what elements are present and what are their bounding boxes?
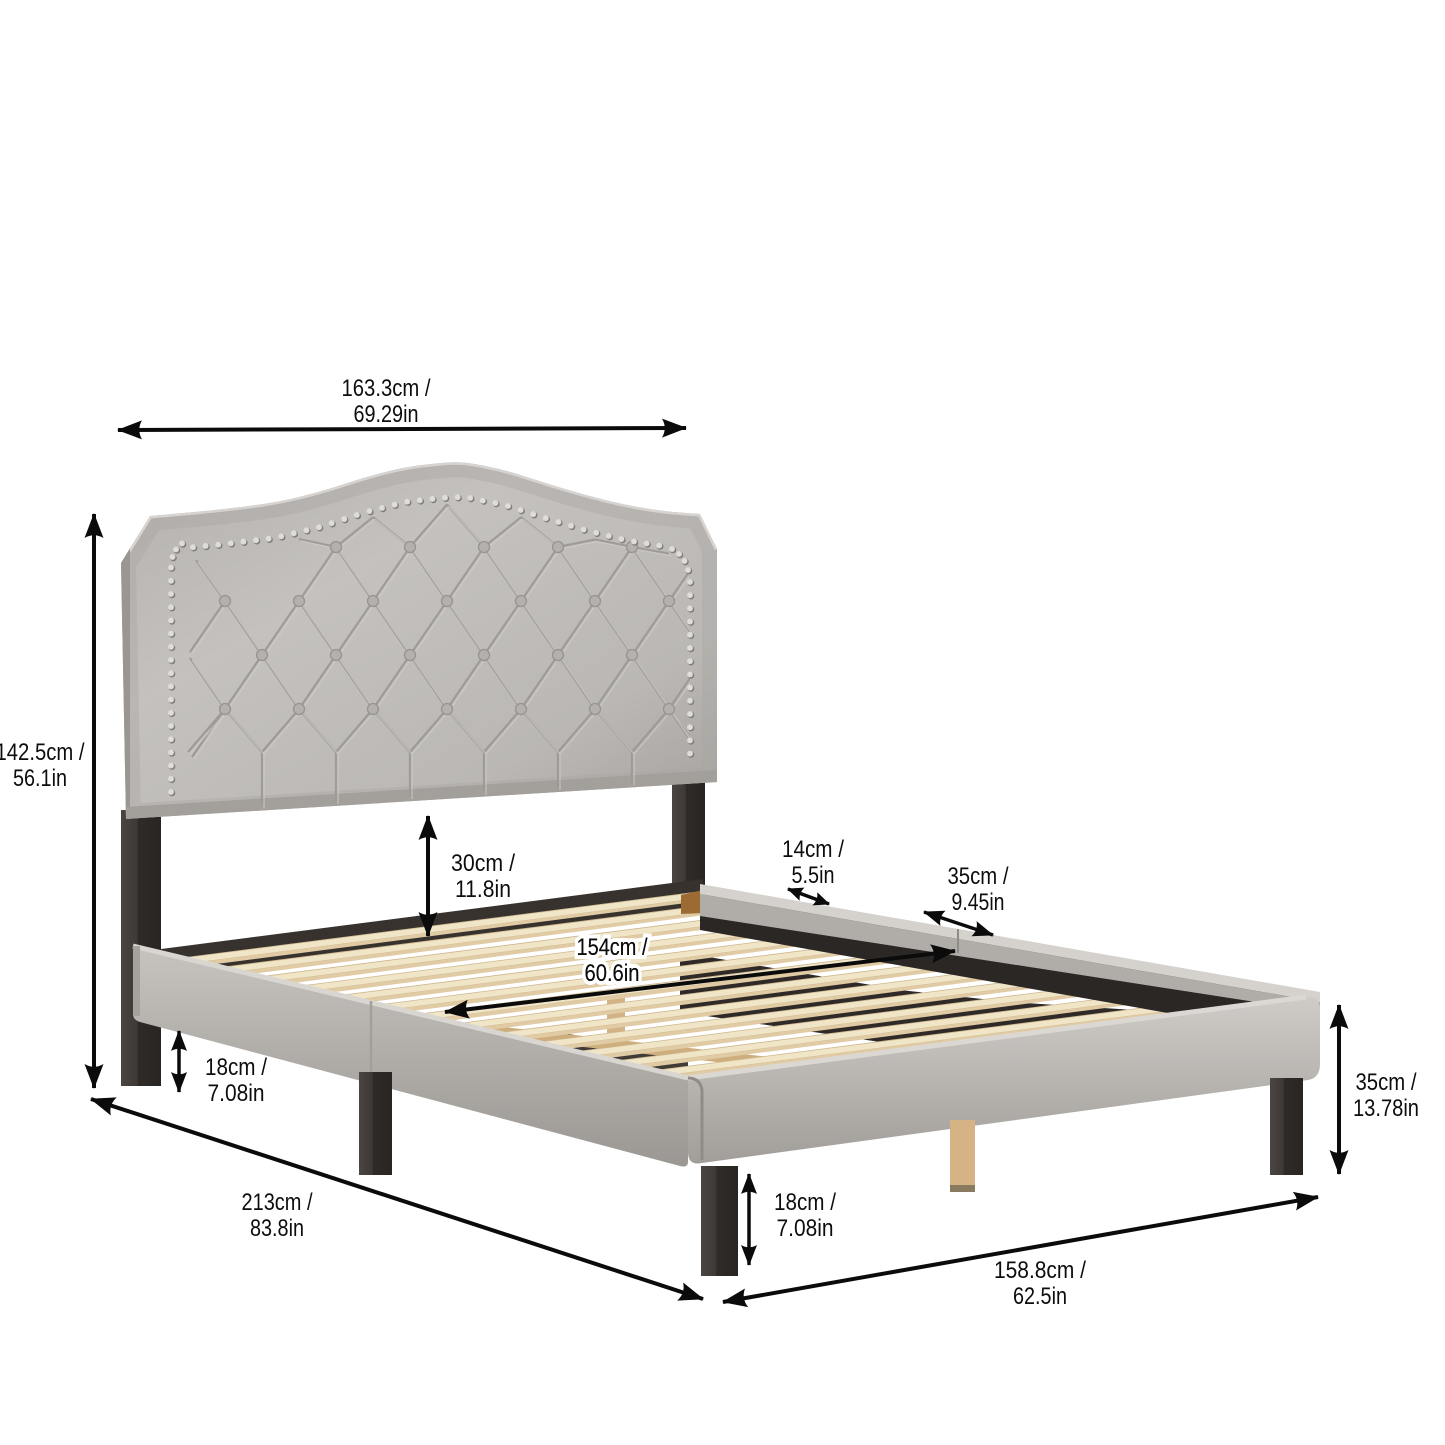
svg-text:18cm /: 18cm /: [774, 1189, 836, 1216]
svg-text:83.8in: 83.8in: [250, 1215, 304, 1242]
svg-text:60.6in: 60.6in: [585, 960, 640, 987]
svg-text:158.8cm /: 158.8cm /: [994, 1257, 1086, 1284]
svg-text:69.29in: 69.29in: [354, 401, 419, 428]
svg-text:30cm /: 30cm /: [451, 850, 515, 877]
svg-text:154cm /: 154cm /: [577, 934, 648, 961]
svg-text:35cm /: 35cm /: [948, 863, 1009, 890]
svg-text:7.08in: 7.08in: [777, 1215, 834, 1242]
svg-text:5.5in: 5.5in: [792, 862, 835, 889]
svg-text:14cm /: 14cm /: [782, 836, 844, 863]
svg-text:7.08in: 7.08in: [208, 1080, 265, 1107]
svg-text:142.5cm /: 142.5cm /: [0, 739, 85, 766]
svg-text:213cm /: 213cm /: [242, 1189, 313, 1216]
svg-text:9.45in: 9.45in: [952, 889, 1005, 916]
svg-text:13.78in: 13.78in: [1353, 1095, 1419, 1122]
svg-text:35cm /: 35cm /: [1356, 1069, 1417, 1096]
svg-text:56.1in: 56.1in: [13, 765, 67, 792]
svg-text:18cm /: 18cm /: [205, 1054, 267, 1081]
svg-text:11.8in: 11.8in: [455, 876, 511, 903]
svg-text:163.3cm /: 163.3cm /: [342, 375, 431, 402]
svg-text:62.5in: 62.5in: [1013, 1283, 1067, 1310]
